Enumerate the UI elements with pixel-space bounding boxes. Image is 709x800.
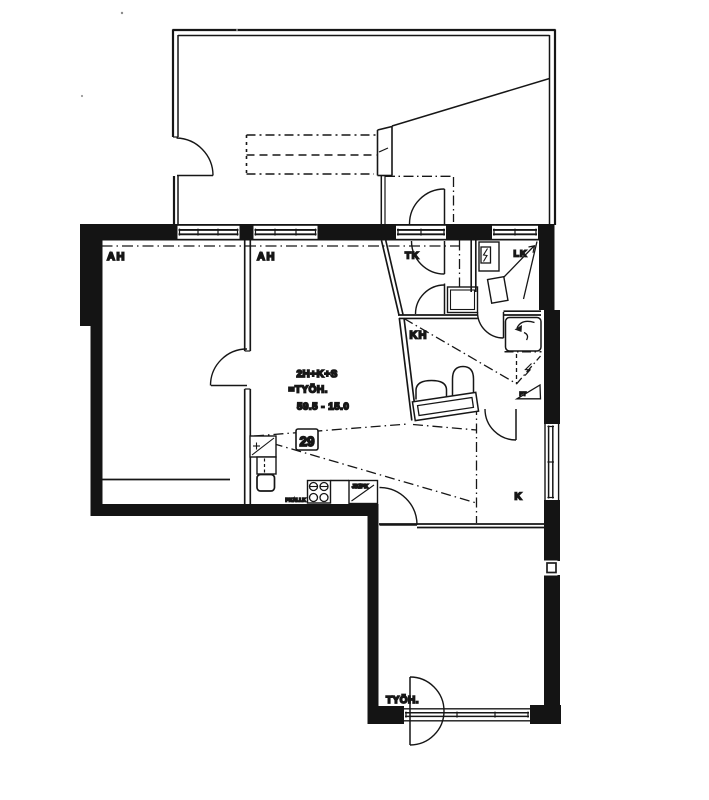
svg-text:KH: KH <box>410 330 428 342</box>
svg-text:PT: PT <box>520 392 527 398</box>
svg-text:=TYÖH.: =TYÖH. <box>289 384 328 396</box>
svg-text:AH: AH <box>107 251 126 263</box>
svg-text:29: 29 <box>300 434 315 449</box>
svg-text:TYÖH.: TYÖH. <box>386 694 419 706</box>
svg-text:PKALLK: PKALLK <box>286 498 307 504</box>
svg-text:AH: AH <box>257 251 276 263</box>
svg-text:K: K <box>515 492 523 503</box>
svg-text:LK: LK <box>514 249 528 259</box>
svg-text:59.5 - 15.0: 59.5 - 15.0 <box>297 402 349 413</box>
svg-text:2H+K+S: 2H+K+S <box>297 369 338 380</box>
svg-text:TK: TK <box>405 251 420 262</box>
svg-text:JK/PK: JK/PK <box>352 484 368 490</box>
